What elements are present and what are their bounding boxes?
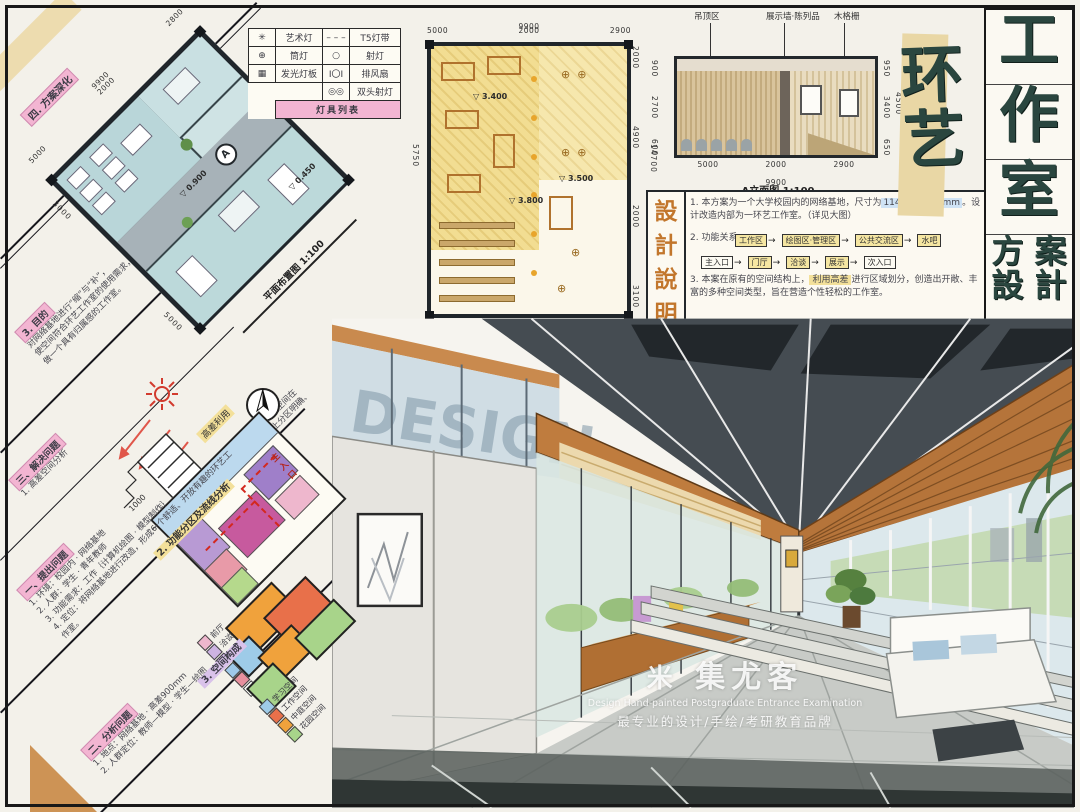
lamp-label: T5灯带 (350, 29, 401, 47)
function-flow-row-2: 主入口→ 门厅→ 洽谈→ 展示→ 次入口 (700, 250, 897, 269)
ceiling-plan-body: ⊕ ⊕ ⊕ ⊕ ⊕ ⊕ ▽ 3.400 ▽ 3.800 ▽ 3.500 (427, 42, 631, 318)
exhaust-fan-icon: I〇I (323, 65, 350, 83)
lamp-label: 筒灯 (276, 47, 323, 65)
elev-dim: 950 (882, 60, 891, 77)
downlight-symbols: ⊕ ⊕ (561, 68, 586, 81)
title-sub-char: 計 (1029, 269, 1072, 303)
elevation-body (674, 56, 878, 158)
strip-light-icon: – – – (323, 29, 350, 47)
ceiling-dim: 4900 (631, 126, 640, 149)
elev-dim: 2700 (650, 96, 659, 119)
lamp-label: 射灯 (350, 47, 401, 65)
title-main: 工 作 室 方 案 設 計 (984, 8, 1074, 330)
elevation-label: 木格栅 (834, 12, 860, 23)
title-side-char: 艺 (898, 106, 970, 173)
watermark-brand: 集尤客 (695, 660, 803, 695)
downlight-icon: ⊕ (249, 47, 276, 65)
lamp-label: 发光灯板 (276, 65, 323, 83)
title-sub-char: 設 (986, 269, 1029, 303)
elev-dim: 3400 (882, 96, 891, 119)
corridor-artwork (786, 550, 798, 567)
title-char: 工 (986, 10, 1072, 85)
lamp-table-caption: 灯具列表 (276, 101, 401, 119)
title-char: 作 (986, 85, 1072, 160)
title-sub-char: 方 (986, 235, 1029, 269)
notes-title-char: 設 (655, 192, 678, 226)
art-lamp-icon: ✳ (249, 29, 276, 47)
ceiling-dim: 2000 (518, 26, 539, 35)
lamp-label: 艺术灯 (276, 29, 323, 47)
watermark-cn: 最专业的设计/手绘/考研教育品牌 (575, 711, 875, 730)
presentation-board: 9900 5000 2000 2800 3000 5000 (0, 0, 1080, 812)
spotlight-icon: ○ (323, 47, 350, 65)
sun-icon (146, 378, 178, 410)
elev-dim: 600 (650, 139, 659, 156)
elev-dim: 900 (650, 60, 659, 77)
ceiling-dim: 2000 (631, 205, 640, 228)
ceiling-dim: 2900 (610, 26, 631, 35)
watermark-en: Design Hand-painted Postgraduate Entranc… (575, 698, 875, 709)
elevation-label: 吊顶区 (694, 12, 720, 23)
elev-dim: 5000 (697, 160, 718, 169)
elevation-drawing: 吊顶区 展示墙·陈列品 木格栅 900 2700 (648, 12, 904, 190)
ceiling-dim: 3100 (631, 285, 640, 308)
lamp-label: 双头射灯 (350, 83, 401, 101)
function-flow-row-1: 工作区→ 绘图区·管理区→ 公共交流区→ 水吧 (734, 228, 942, 247)
notes-line-3: 3. 本案在原有的空间结构上，利用高差进行区域划分，创造出开敞、丰富的多种空间类… (690, 274, 984, 300)
notes-title-char: 計 (655, 226, 678, 260)
ceiling-dim: 2000 (631, 46, 640, 69)
watermark-logo-icon: 米 (647, 664, 679, 694)
lamp-label: 排风扇 (350, 65, 401, 83)
title-side: 环 艺 (896, 41, 971, 174)
wall-artwork (358, 514, 422, 606)
watermark: 米 集尤客 Design Hand-painted Postgraduate E… (575, 652, 875, 730)
ceiling-level: ▽ 3.500 (559, 174, 593, 183)
elev-dim: 650 (882, 139, 891, 156)
perspective-rendering: DESIGN (332, 318, 1074, 808)
double-spot-icon: ◎◎ (323, 83, 350, 101)
lamp-legend-table: ✳ 艺术灯 – – – T5灯带 ⊕ 筒灯 ○ 射灯 ▦ 发光灯板 I〇I 排风… (248, 28, 401, 119)
notes-title-char: 說 (655, 260, 678, 294)
corridor-end (781, 536, 803, 612)
title-side-char: 环 (896, 41, 968, 108)
ceiling-level: ▽ 3.800 (509, 196, 543, 205)
title-char: 室 (986, 160, 1072, 235)
elev-dim: 2000 (765, 160, 786, 169)
ceiling-level: ▽ 3.400 (473, 92, 507, 101)
title-sub-char: 案 (1029, 235, 1072, 269)
ceiling-dim-left: 5750 (411, 144, 420, 167)
left-wall (332, 436, 536, 797)
elev-dim: 2900 (833, 160, 854, 169)
ceiling-dim: 5000 (427, 26, 448, 35)
ceiling-plan: 9900 5000 2000 2900 5750 ⊕ ⊕ ⊕ ⊕ ⊕ ⊕ (413, 14, 663, 340)
elevation-label: 展示墙·陈列品 (766, 12, 820, 23)
light-panel-icon: ▦ (249, 65, 276, 83)
